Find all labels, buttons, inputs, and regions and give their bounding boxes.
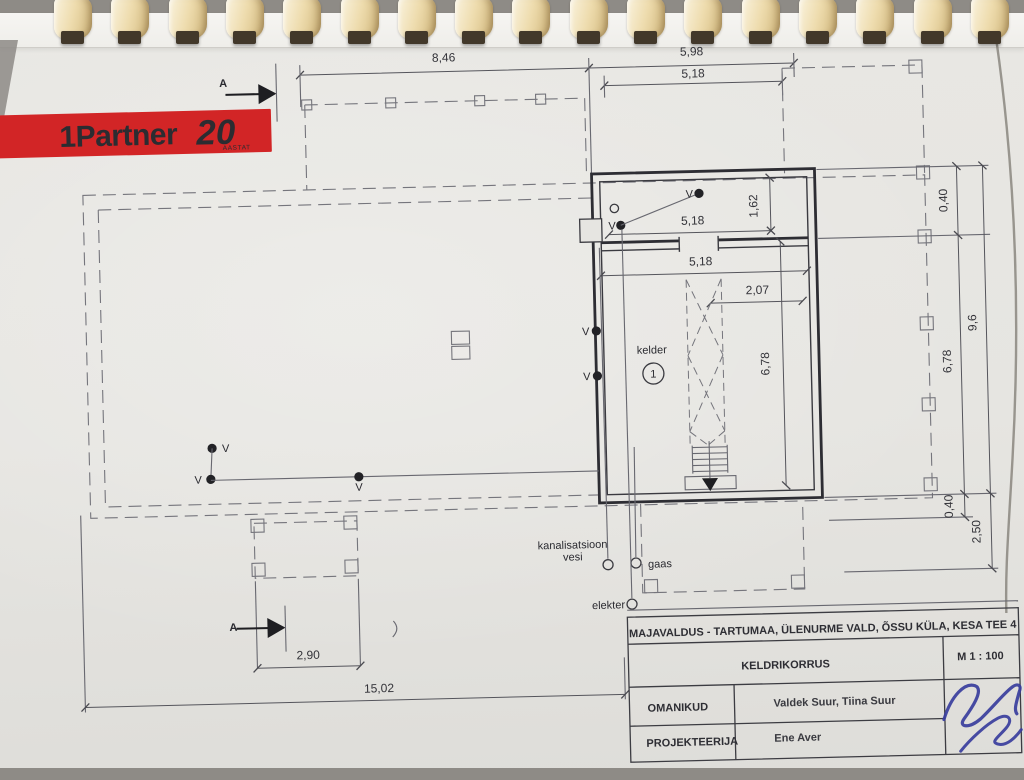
pen-mark [392,621,397,637]
vent-label: V [222,443,230,455]
right-dimensions: 0,40 6,78 9,6 0,40 2,50 [816,165,998,572]
vent-label: V [582,326,590,338]
comb-binding [0,0,1024,60]
owners-label: OMANIKUD [647,701,708,714]
title-scale: M 1 : 100 [957,650,1004,663]
gas-label: gaas [648,558,673,571]
drawing-rotated-layer: 8,46 5,98 5,18 [0,0,1024,780]
water-connection [603,560,613,570]
section-marker-bottom: A [229,606,286,653]
dim-room-mid: 5,18 [689,254,713,269]
electric-label: elekter [592,599,626,612]
owners-value: Valdek Suur, Tiina Suur [773,695,896,710]
logo-sub: AASTAT [223,144,251,152]
vent-point [694,189,703,198]
title-address: MAJAVALDUS - TARTUMAA, ÜLENURME VALD, ÕS… [629,618,1018,640]
room-label: kelder [637,344,668,357]
logo: 1Partner 20 AASTAT [0,109,272,159]
dim-stair-width: 2,07 [746,283,770,298]
electric-connection [627,599,637,609]
designer-label: PROJEKTEERIJA [646,736,738,750]
dim-right-offset-top: 0,40 [936,188,951,212]
dim-room-top: 5,18 [681,213,705,228]
logo-brand: 1Partner [59,118,178,154]
dim-right-total: 9,6 [965,314,979,331]
vent-label: V [355,482,363,494]
dim-total-width: 15,02 [364,681,395,696]
water-label: vesi [563,551,583,563]
gas-connection [631,558,641,568]
room-number: 1 [650,368,656,380]
floor-plan: 8,46 5,98 5,18 [0,0,1024,780]
dim-porch-width: 2,90 [296,648,320,663]
vent-label: V [194,475,202,487]
dim-right-depth: 6,78 [940,349,955,373]
porch: 2,90 [251,516,361,669]
dim-room-height: 1,62 [746,194,761,218]
section-label: A [219,78,227,90]
title-drawing-name: KELDRIKORRUS [741,658,830,672]
dim-top-inner: 5,18 [681,66,705,81]
designer-value: Ene Aver [774,732,822,745]
dim-room-depth: 6,78 [758,352,773,376]
vent-label: V [686,189,694,201]
stairs [680,279,736,492]
section-label: A [229,622,237,634]
sewer-label: kanalisatsioon [538,539,608,553]
dim-right-offset-bottom: 0,40 [941,494,956,518]
signature [943,684,1022,752]
title-block: MAJAVALDUS - TARTUMAA, ÜLENURME VALD, ÕS… [627,601,1022,763]
vent-label: V [583,371,591,383]
vent-label: V [608,220,616,232]
water-line: V V V [194,434,600,498]
bottom-dimensions: 15,02 [81,502,626,712]
top-dimensions: 8,46 5,98 5,18 [299,42,796,181]
photo-of-floor-plan: { "logo": { "brand": "1Partner", "years"… [0,0,1024,768]
dim-right-terrace: 2,50 [969,520,984,544]
